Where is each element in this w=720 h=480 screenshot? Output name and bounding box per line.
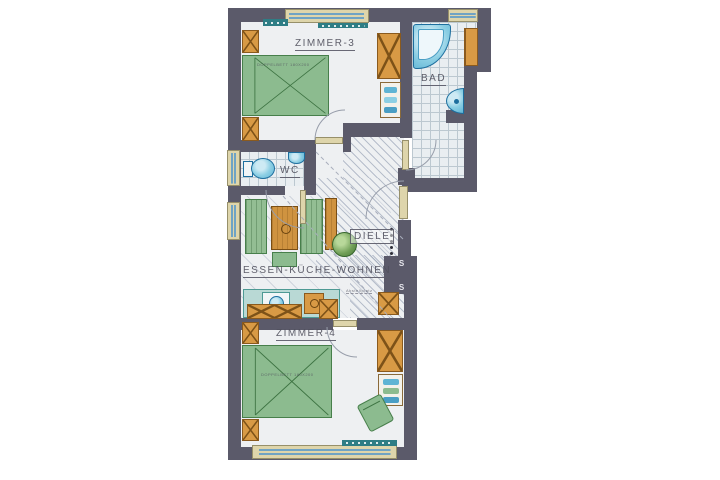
stove-knob bbox=[310, 299, 319, 308]
cabinet-bad bbox=[464, 28, 478, 66]
wall-zimmer3-bottom-right bbox=[343, 123, 402, 137]
room-label-zimmer3: ZIMMER-3 bbox=[295, 37, 355, 51]
towel-icon bbox=[383, 388, 399, 394]
storage-wardrobe bbox=[378, 292, 399, 315]
shaft-label: S S bbox=[396, 259, 406, 295]
dining-table bbox=[271, 206, 298, 250]
storage-label: Abstellplatz bbox=[346, 288, 372, 294]
room-label-diele: DIELE bbox=[350, 229, 394, 244]
shelf-zimmer3 bbox=[380, 82, 401, 118]
wall-wc-bottom bbox=[241, 186, 285, 195]
floorplan-canvas: DOPPELBETT 180X200 bbox=[0, 0, 720, 480]
washbasin-drain bbox=[454, 99, 459, 104]
chair-back-line bbox=[363, 401, 380, 411]
wall-wc-right bbox=[304, 140, 316, 195]
towel-icon bbox=[384, 107, 397, 113]
toilet-bowl bbox=[251, 158, 275, 179]
window-sill-zimmer4 bbox=[342, 440, 397, 446]
window-zimmer3 bbox=[285, 9, 369, 23]
wall-entry-lower bbox=[398, 220, 411, 258]
bed-zimmer3: DOPPELBETT 180X200 bbox=[242, 55, 329, 116]
bed-zimmer3-label: DOPPELBETT 180X200 bbox=[257, 62, 310, 67]
wall-zimmer3-door-jog bbox=[343, 137, 351, 152]
nightstand-zimmer3-bottom bbox=[242, 117, 259, 141]
door-bad bbox=[402, 140, 409, 170]
room-label-zimmer4: ZIMMER-4 bbox=[276, 327, 336, 341]
bed-zimmer4: DOPPELBETT 180X200 bbox=[242, 345, 332, 418]
dining-bench-left bbox=[245, 199, 267, 254]
nightstand-zimmer4-bottom bbox=[242, 419, 259, 441]
coat-hook-dot bbox=[390, 246, 393, 249]
nightstand-zimmer4-top bbox=[242, 322, 259, 344]
window-living bbox=[227, 202, 240, 240]
room-label-wc: WC bbox=[280, 164, 300, 178]
window-zimmer4 bbox=[252, 445, 397, 459]
bed-zimmer4-label: DOPPELBETT 180X200 bbox=[261, 372, 314, 377]
door-wc bbox=[300, 190, 306, 224]
door-zimmer4 bbox=[333, 320, 357, 327]
wall-bad-left bbox=[400, 20, 412, 138]
diele-hatch-upper bbox=[343, 137, 402, 178]
towel-icon bbox=[384, 97, 397, 103]
door-entry bbox=[399, 186, 408, 219]
kitchen-cabinet-front bbox=[247, 304, 302, 319]
towel-icon bbox=[383, 379, 399, 385]
coat-hook-dot bbox=[390, 252, 393, 255]
bathtub-inner bbox=[418, 29, 444, 60]
corner-basin-wc-icon bbox=[288, 152, 305, 164]
window-wc bbox=[227, 150, 240, 186]
room-label-wohnen: ESSEN-KÜCHE-WOHNEN bbox=[243, 264, 391, 278]
wall-right-mid bbox=[464, 58, 477, 192]
wardrobe-zimmer4 bbox=[377, 330, 403, 372]
wall-entry-corner bbox=[398, 168, 415, 185]
wardrobe-zimmer3 bbox=[377, 33, 401, 79]
wall-living-zimmer4-right bbox=[357, 318, 404, 330]
door-zimmer3 bbox=[315, 137, 343, 144]
kitchen-counter bbox=[243, 289, 340, 318]
towel-icon bbox=[384, 87, 397, 93]
wall-zimmer4-right bbox=[404, 292, 417, 460]
toilet-icon bbox=[243, 158, 275, 178]
kitchen-tall-unit bbox=[319, 299, 338, 319]
nightstand-zimmer3-top bbox=[242, 30, 259, 53]
window-sill-zimmer3 bbox=[318, 23, 368, 28]
window-bad bbox=[448, 9, 478, 22]
window-sill-tag-zimmer3-left bbox=[263, 19, 288, 26]
room-label-bad: BAD bbox=[421, 72, 446, 86]
table-knob bbox=[281, 224, 291, 234]
